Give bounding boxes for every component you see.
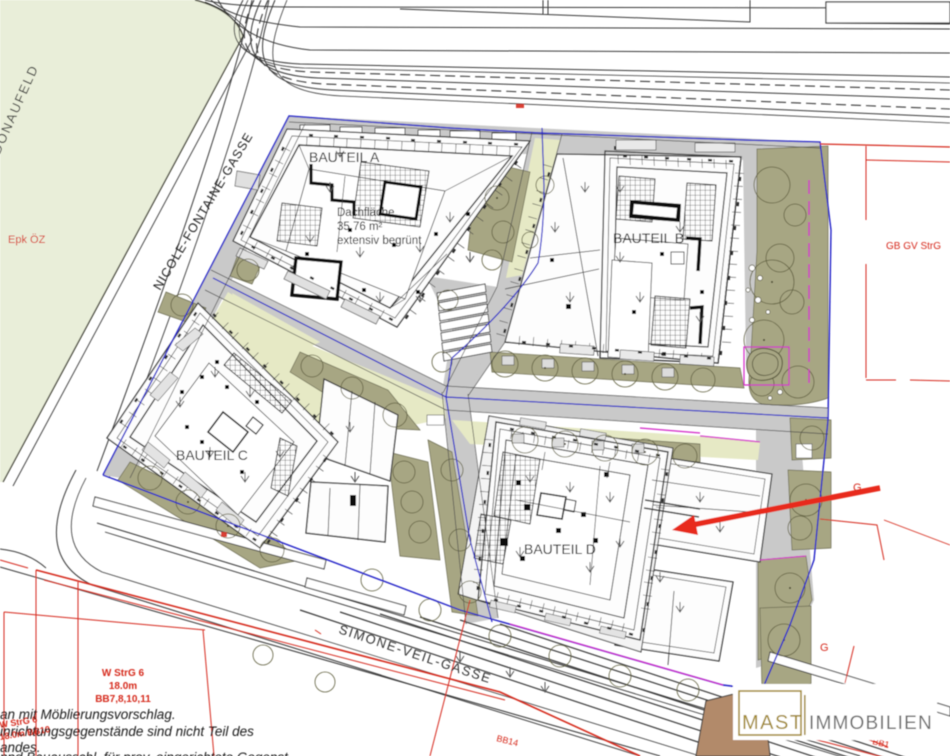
svg-text:Epk ÖZ: Epk ÖZ [8, 234, 46, 246]
svg-text:BB7,8,10,11: BB7,8,10,11 [95, 694, 151, 705]
svg-text:extensiv begrünt: extensiv begrünt [337, 235, 422, 247]
svg-text:IMMOBILIEN: IMMOBILIEN [809, 713, 933, 734]
svg-text:G: G [853, 482, 862, 494]
svg-text:18.0m: 18.0m [109, 681, 137, 692]
svg-text:an mit Möblierungsvorschlag.: an mit Möblierungsvorschlag. [0, 707, 176, 722]
svg-text:Dachfläche: Dachfläche [337, 207, 395, 219]
svg-text:BAUTEIL B: BAUTEIL B [613, 230, 684, 246]
svg-text:nnd Bauausschl. für prov. eing: nnd Bauausschl. für prov. eingerichtete … [0, 750, 292, 756]
svg-text:35,76 m²: 35,76 m² [337, 221, 383, 233]
svg-text:G: G [820, 642, 829, 654]
svg-text:GB GV StrG: GB GV StrG [886, 241, 941, 252]
svg-text:inrichtungsgegenstände sind ni: inrichtungsgegenstände sind nicht Teil d… [0, 724, 254, 739]
svg-text:BAUTEIL A: BAUTEIL A [309, 149, 380, 165]
svg-text:MAST: MAST [742, 712, 804, 734]
svg-text:BAUTEIL D: BAUTEIL D [524, 541, 596, 557]
svg-text:W StrG 6: W StrG 6 [102, 668, 145, 679]
svg-text:BAUTEIL C: BAUTEIL C [176, 447, 248, 463]
